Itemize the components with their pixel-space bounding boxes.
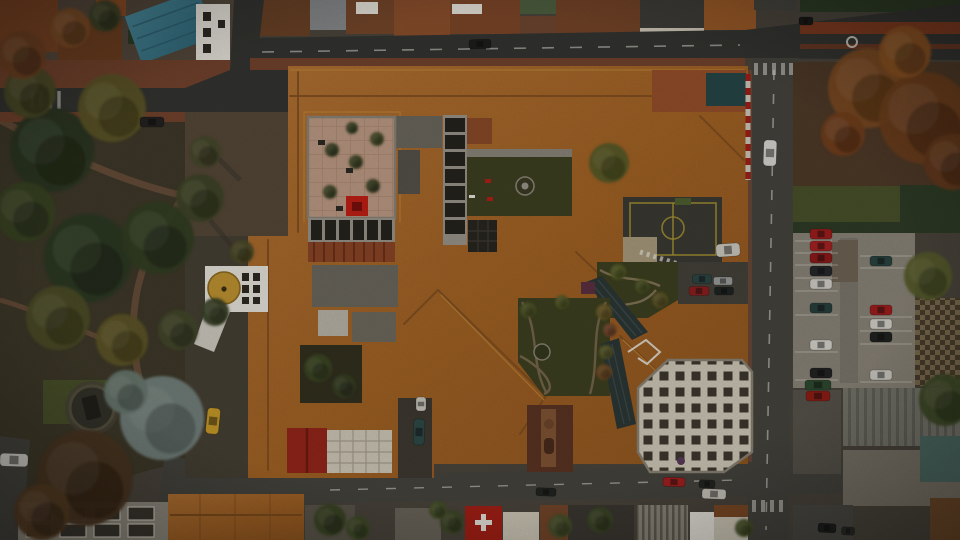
aerial-photo: [0, 0, 960, 540]
aerial-photo-canvas: [0, 0, 960, 540]
vignette: [0, 0, 960, 540]
